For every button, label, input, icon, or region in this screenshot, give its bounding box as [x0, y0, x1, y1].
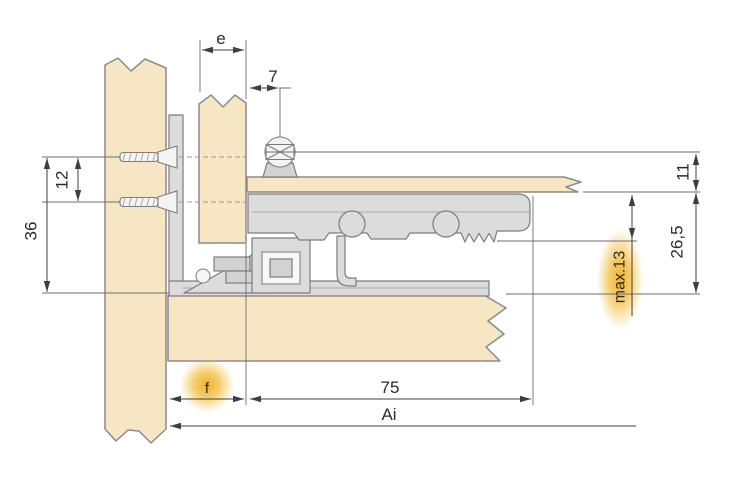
dimension-e: e — [200, 29, 246, 99]
dim-label-e: e — [216, 29, 225, 48]
runner-roller-rear — [433, 211, 459, 237]
installation-drawing: e 7 12 36 11 26,5 max.13 f — [0, 0, 753, 489]
middle-panel — [199, 95, 246, 243]
dim-label-max13: max.13 — [612, 251, 629, 304]
bracket-roller — [196, 269, 210, 283]
dim-label-75: 75 — [381, 378, 400, 397]
dim-label-7: 7 — [268, 67, 277, 86]
dim-label-11: 11 — [674, 163, 693, 181]
technical-drawing-canvas: e 7 12 36 11 26,5 max.13 f — [0, 0, 753, 489]
dim-label-12: 12 — [53, 171, 72, 190]
dimension-ai: Ai — [170, 405, 636, 426]
dimension-7: 7 — [250, 67, 291, 137]
dim-label-ai: Ai — [381, 405, 396, 424]
top-shelf — [247, 177, 581, 192]
dim-label-26-5: 26,5 — [668, 225, 687, 258]
shelf-support-screw — [263, 137, 297, 177]
hook-lever — [337, 236, 356, 286]
bottom-shelf — [168, 295, 506, 361]
left-side-panel — [105, 58, 166, 443]
runner-rail — [248, 194, 530, 242]
runner-roller-front — [339, 211, 365, 237]
dim-label-36: 36 — [22, 222, 41, 241]
